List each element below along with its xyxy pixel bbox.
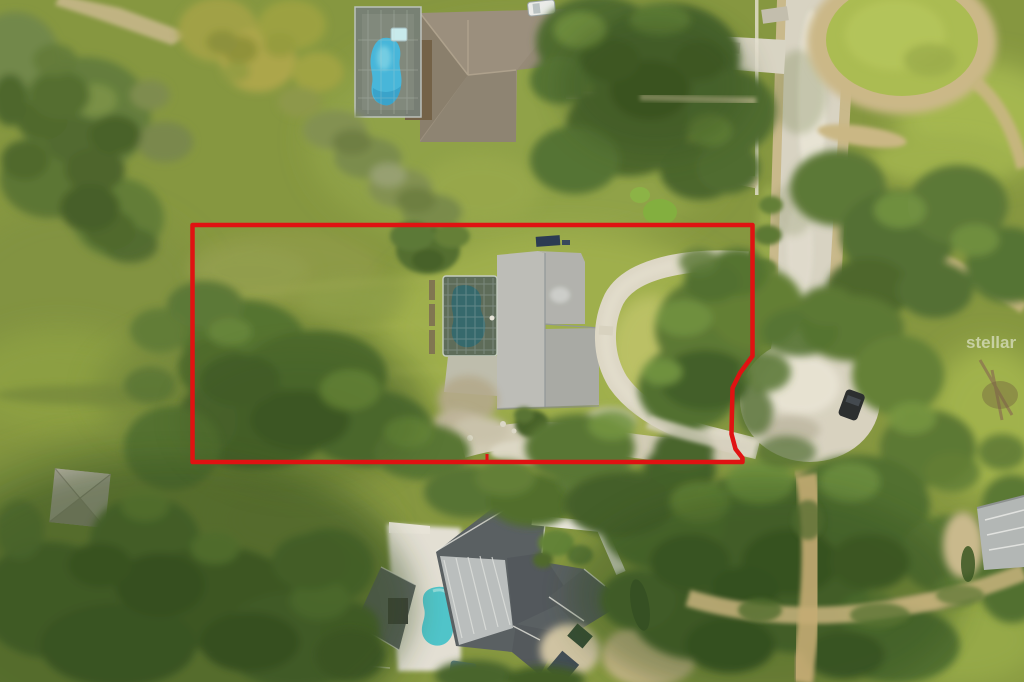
svg-text:stellar: stellar (966, 333, 1016, 352)
